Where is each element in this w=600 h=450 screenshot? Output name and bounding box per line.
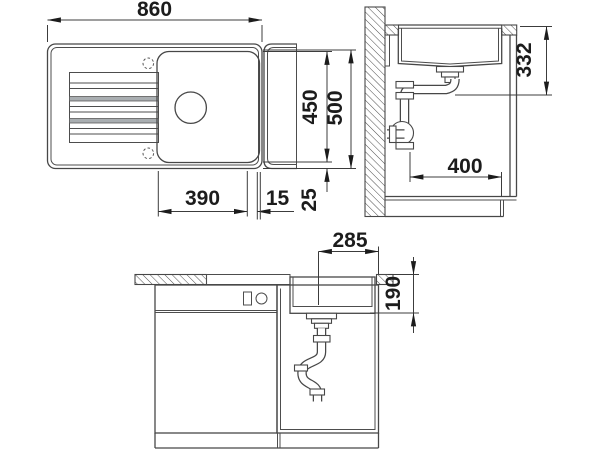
top-view-dimensions: 860 390 15 450 500 25 [48, 0, 357, 220]
sink-front-rim [207, 275, 291, 285]
drainboard-groove [70, 97, 159, 102]
drain-hole [175, 92, 206, 123]
dim-rim-width: 15 [266, 187, 290, 210]
tap-hole-top [143, 58, 154, 69]
countertop-front-left [135, 275, 207, 285]
tap-hole-bottom [143, 148, 154, 159]
drainboard-groove [70, 119, 159, 124]
dim-bowl-length: 390 [185, 187, 220, 210]
cabinet-right-front [277, 285, 379, 433]
cabinet-left-front [155, 285, 277, 433]
dim-drain-to-edge: 285 [332, 229, 367, 252]
countertop-left [385, 25, 399, 35]
handle-knob [256, 293, 267, 304]
dim-inner-depth: 450 [299, 89, 322, 124]
bowl-section [398, 25, 501, 67]
p-trap [386, 79, 456, 149]
bowl-front-section [290, 277, 375, 313]
countertop-right [502, 25, 517, 35]
dim-overall-width: 860 [137, 0, 172, 21]
side-view-dimensions: 332 400 [410, 27, 552, 197]
sink-top-view [48, 44, 298, 169]
bowl-outline [157, 52, 260, 163]
drainboard [70, 73, 159, 143]
dim-overall-depth: 500 [324, 90, 347, 125]
sink-front-view [135, 252, 393, 449]
adjacent-section [264, 44, 297, 169]
wall-batten [385, 35, 390, 66]
dim-cabinet-depth: 400 [447, 155, 482, 178]
drain-strainer-front [307, 313, 337, 328]
technical-drawing: 860 390 15 450 500 25 [0, 0, 600, 450]
sink-side-section-view [365, 7, 517, 217]
dim-bowl-depth: 190 [382, 276, 405, 311]
wall-section [365, 7, 385, 217]
plinth [155, 433, 379, 448]
s-trap-front [295, 328, 331, 401]
dim-outlet-height: 332 [513, 42, 536, 77]
handle-rect [244, 292, 252, 305]
dim-edge-margin: 25 [298, 188, 321, 212]
